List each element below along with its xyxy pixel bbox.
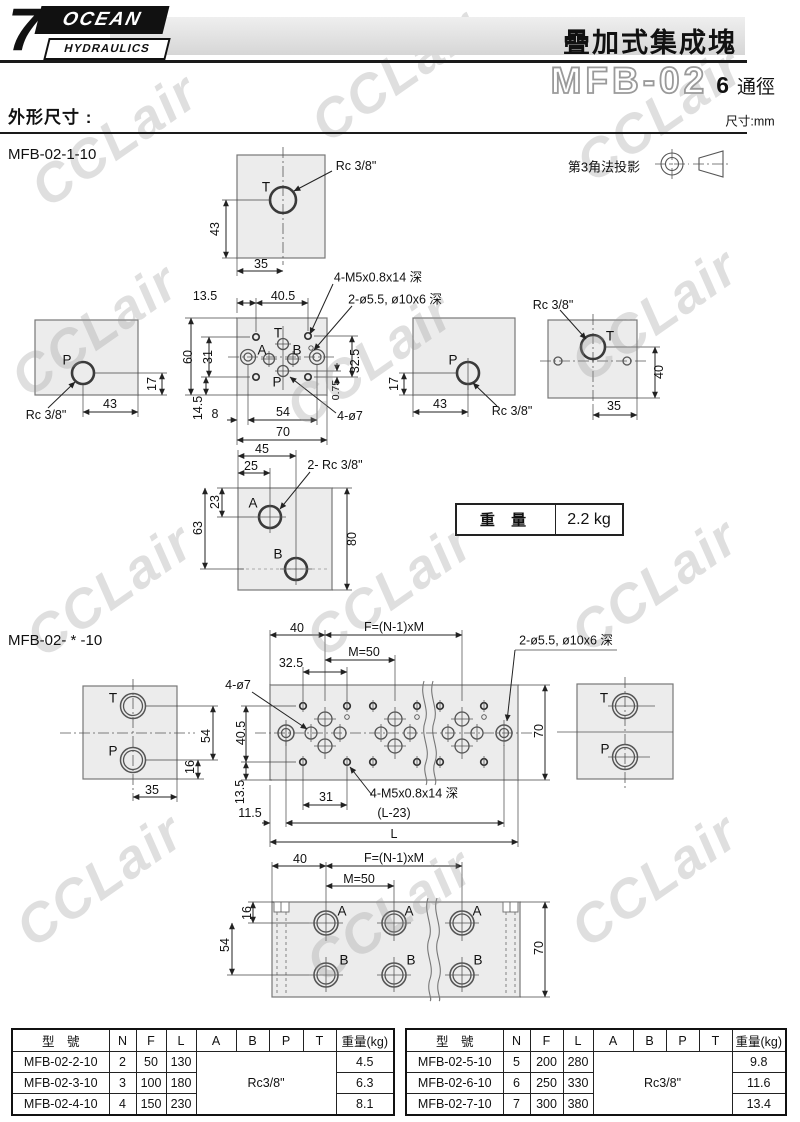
view-end-t (540, 310, 660, 420)
cell-port-thread: Rc3/8" (196, 1052, 336, 1116)
col-header: A (196, 1029, 236, 1052)
model-heading: MFB-02 6 通徑 (440, 60, 775, 102)
callout-m5: 4-M5x0.8x14 深 (370, 783, 458, 802)
cell-port-thread: Rc3/8" (593, 1052, 732, 1116)
dim-23: 23 (208, 495, 222, 509)
port-label-a: A (248, 496, 257, 511)
weight-box: 重 量 2.2 kg (455, 503, 624, 536)
dim-43: 43 (433, 397, 447, 411)
dim-43: 43 (208, 222, 222, 236)
dim-43: 43 (103, 397, 117, 411)
cell-model: MFB-02-3-10 (12, 1073, 109, 1094)
callout-rc38: Rc 3/8" (336, 159, 377, 173)
dim-32-5: 32.5 (348, 349, 362, 373)
port-label-t: T (606, 329, 614, 344)
col-header: A (593, 1029, 633, 1052)
dim-32-5: 32.5 (279, 656, 303, 670)
port-label-t: T (274, 326, 282, 341)
dim-0-75: 0.75 (330, 380, 342, 400)
port-label-b: B (339, 953, 348, 968)
dim-8: 8 (212, 407, 219, 421)
cell-weight: 6.3 (336, 1073, 394, 1094)
cell-n: 2 (109, 1052, 136, 1073)
cell-weight: 4.5 (336, 1052, 394, 1073)
dim-l: L (391, 827, 398, 841)
table-row: MFB-02-5-10 5 200 280 Rc3/8" 9.8 (406, 1052, 786, 1073)
port-label-b: B (273, 547, 282, 562)
projection-symbol (655, 149, 729, 179)
port-label-t: T (109, 691, 117, 706)
dim-17: 17 (387, 377, 401, 391)
cell-n: 5 (503, 1052, 530, 1073)
cell-weight: 9.8 (732, 1052, 786, 1073)
col-header: 重量(kg) (336, 1029, 394, 1052)
col-header: P (666, 1029, 699, 1052)
callout-counterbore: 2-ø5.5, ø10x6 深 (519, 630, 613, 649)
dim-11-5: 11.5 (238, 806, 261, 820)
cell-n: 4 (109, 1094, 136, 1116)
drawing-linework (0, 0, 800, 1122)
cell-model: MFB-02-7-10 (406, 1094, 503, 1116)
callout-m5: 4-M5x0.8x14 深 (334, 267, 422, 286)
dim-35: 35 (145, 783, 159, 797)
dim-60: 60 (181, 350, 195, 364)
callout-2rc38: 2- Rc 3/8" (307, 458, 362, 472)
port-label-p: P (108, 744, 117, 759)
port-label-b: B (473, 953, 482, 968)
col-header: 型 號 (406, 1029, 503, 1052)
cell-l: 180 (166, 1073, 196, 1094)
cell-model: MFB-02-6-10 (406, 1073, 503, 1094)
cell-f: 100 (136, 1073, 166, 1094)
col-header: T (303, 1029, 336, 1052)
drawing2-label: MFB-02- * -10 (8, 632, 102, 649)
section-rule (0, 132, 747, 134)
port-label-b: B (406, 953, 415, 968)
cell-f: 300 (530, 1094, 563, 1116)
table-row: MFB-02-2-10 2 50 130 Rc3/8" 4.5 (12, 1052, 394, 1073)
dim-45: 45 (255, 442, 269, 456)
logo-ocean-band: OCEAN (35, 6, 170, 34)
cell-weight: 13.4 (732, 1094, 786, 1116)
cell-model: MFB-02-5-10 (406, 1052, 503, 1073)
cell-f: 200 (530, 1052, 563, 1073)
bore-size: 6 (716, 72, 729, 99)
callout-rc38: Rc 3/8" (26, 408, 67, 422)
port-label-a: A (257, 343, 266, 358)
dim-m50: M=50 (348, 645, 380, 659)
cell-f: 150 (136, 1094, 166, 1116)
spec-table-right: 型 號 N F L A B P T 重量(kg) MFB-02-5-10 5 2… (405, 1028, 787, 1116)
port-label-p: P (600, 742, 609, 757)
cell-l: 380 (563, 1094, 593, 1116)
view-left-p (35, 320, 167, 417)
dim-17: 17 (145, 377, 159, 391)
dim-54: 54 (218, 938, 232, 952)
port-label-p: P (272, 375, 281, 390)
dim-70: 70 (532, 941, 546, 955)
cell-l: 130 (166, 1052, 196, 1073)
dim-40: 40 (290, 621, 304, 635)
callout-4o7: 4-ø7 (337, 409, 363, 423)
port-label-a: A (472, 904, 481, 919)
dim-13-5: 13.5 (193, 289, 217, 303)
unit-note: 尺寸:mm (725, 111, 774, 130)
port-label-t: T (600, 691, 608, 706)
page-title: 疊加式集成塊 (563, 21, 737, 60)
col-header: T (699, 1029, 732, 1052)
view-right-p (399, 318, 515, 417)
dim-54: 54 (199, 729, 213, 743)
dim-31: 31 (201, 350, 215, 364)
callout-rc38: Rc 3/8" (533, 298, 574, 312)
col-header: P (269, 1029, 303, 1052)
port-label-p: P (62, 353, 71, 368)
spec-table-left: 型 號 N F L A B P T 重量(kg) MFB-02-2-10 2 5… (11, 1028, 395, 1116)
dim-31: 31 (319, 790, 333, 804)
view2-right-tp (557, 677, 673, 788)
drawing1-label: MFB-02-1-10 (8, 146, 96, 163)
dim-70: 70 (276, 425, 290, 439)
dim-63: 63 (191, 521, 205, 535)
cell-n: 3 (109, 1073, 136, 1094)
cell-l: 230 (166, 1094, 196, 1116)
weight-value: 2.2 kg (556, 505, 622, 534)
dim-14-5: 14.5 (191, 396, 205, 420)
dim-f-formula: F=(N-1)xM (364, 620, 424, 634)
col-header: F (530, 1029, 563, 1052)
dim-40-5: 40.5 (234, 721, 248, 745)
col-header: B (236, 1029, 269, 1052)
dim-35: 35 (607, 399, 621, 413)
projection-label: 第3角法投影 (568, 157, 640, 176)
brand-logo: 7 OCEAN HYDRAULICS (8, 4, 168, 62)
col-header: L (563, 1029, 593, 1052)
dim-25: 25 (244, 459, 258, 473)
logo-ocean-text: OCEAN (60, 9, 144, 31)
col-header: B (633, 1029, 666, 1052)
logo-hydraulics-band: HYDRAULICS (43, 38, 170, 60)
dim-16: 16 (183, 760, 197, 774)
col-header: 重量(kg) (732, 1029, 786, 1052)
col-header: N (109, 1029, 136, 1052)
cell-n: 7 (503, 1094, 530, 1116)
cell-f: 50 (136, 1052, 166, 1073)
col-header: N (503, 1029, 530, 1052)
cell-n: 6 (503, 1073, 530, 1094)
callout-counterbore: 2-ø5.5, ø10x6 深 (348, 289, 442, 308)
port-label-t: T (262, 180, 270, 195)
port-label-b: B (292, 343, 301, 358)
cell-f: 250 (530, 1073, 563, 1094)
weight-label: 重 量 (457, 505, 556, 534)
port-label-a: A (404, 904, 413, 919)
dim-54: 54 (276, 405, 290, 419)
dim-70: 70 (532, 724, 546, 738)
cell-weight: 11.6 (732, 1073, 786, 1094)
dim-40-5: 40.5 (271, 289, 295, 303)
dim-m50: M=50 (343, 872, 375, 886)
dim-l23: (L-23) (377, 806, 410, 820)
col-header: F (136, 1029, 166, 1052)
view2-bottom-long (227, 862, 550, 1001)
cell-l: 280 (563, 1052, 593, 1073)
dim-16: 16 (240, 906, 254, 920)
model-number: MFB-02 (551, 60, 709, 102)
view2-left-tp (60, 679, 218, 802)
dim-40: 40 (652, 365, 666, 379)
cell-model: MFB-02-4-10 (12, 1094, 109, 1116)
callout-4o7: 4-ø7 (225, 678, 251, 692)
catalog-page: CCLair CCLair CCLair CCLair CCLair CCLai… (0, 0, 800, 1122)
dim-13-5: 13.5 (233, 780, 247, 804)
cell-l: 330 (563, 1073, 593, 1094)
dim-40: 40 (293, 852, 307, 866)
callout-rc38: Rc 3/8" (492, 404, 533, 418)
dim-35: 35 (254, 257, 268, 271)
view-top-t (222, 147, 332, 276)
col-header: L (166, 1029, 196, 1052)
port-label-p: P (448, 353, 457, 368)
dim-f-formula: F=(N-1)xM (364, 851, 424, 865)
logo-hydraulics-text: HYDRAULICS (63, 43, 151, 55)
port-label-a: A (337, 904, 346, 919)
title-bar: 疊加式集成塊 (110, 17, 745, 55)
bore-suffix: 通徑 (737, 72, 775, 99)
dim-80: 80 (345, 532, 359, 546)
cell-weight: 8.1 (336, 1094, 394, 1116)
section-heading: 外形尺寸 : (8, 103, 92, 128)
cell-model: MFB-02-2-10 (12, 1052, 109, 1073)
col-header: 型 號 (12, 1029, 109, 1052)
